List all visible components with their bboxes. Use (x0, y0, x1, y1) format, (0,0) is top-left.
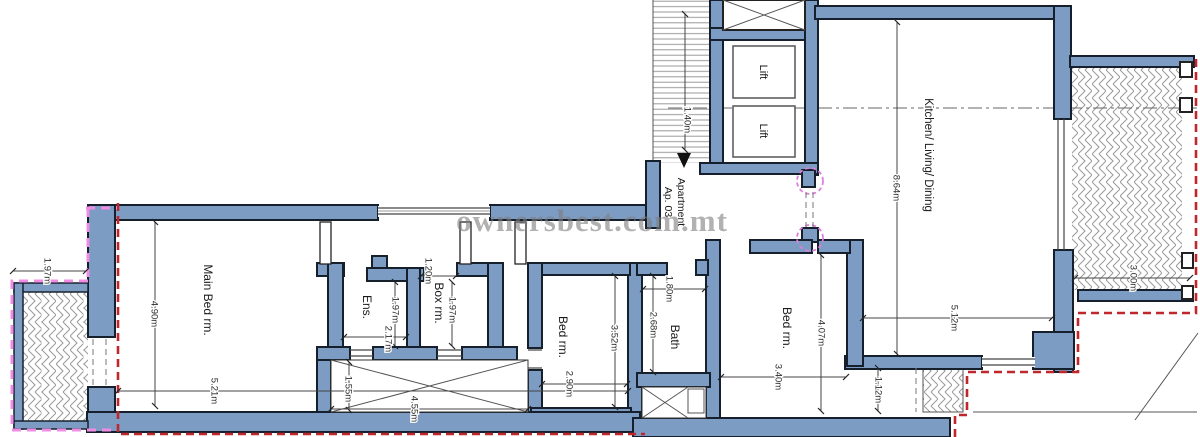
watermark: ownersbest.com.mt (456, 203, 728, 238)
dim-main-bedroom-width: 5.21m (208, 378, 219, 404)
dim-terrace-right-width: 3.00m (1127, 265, 1138, 291)
dim-yard-width: 4.55m (408, 396, 419, 422)
bath-shaft (642, 387, 706, 418)
internal-yard (331, 360, 528, 412)
window-ensuite (350, 350, 373, 356)
dim-box-room-depth: 1.97m (446, 297, 457, 323)
floor-plan-canvas: 1.40m 8.64m 5.12m 3.00m 1.97m 4.90m 5.21… (0, 0, 1200, 437)
dim-bedroom-middle-depth: 3.52m (608, 325, 619, 351)
room-label-bedroom-right: Bed rm. (780, 307, 794, 349)
dim-main-bedroom-depth: 4.90m (148, 301, 159, 327)
boundary-layer (12, 55, 1196, 437)
window-kitchen-east (1058, 119, 1064, 250)
leader-line (1135, 333, 1198, 420)
dim-bedroom-middle-width: 2.90m (563, 371, 574, 397)
staircase-hatch (653, 0, 710, 163)
dim-kitchen-width: 5.12m (948, 305, 959, 331)
strip-hatch (923, 368, 963, 412)
window-bedroom-middle (528, 350, 542, 368)
dim-yard-depth: 1.55m (342, 376, 353, 402)
room-label-main-bedroom: Main Bed rm. (201, 264, 215, 335)
dim-strip-width: 1.12m (872, 377, 883, 403)
dim-ensuite-width: 2.17m (382, 326, 393, 352)
dim-kitchen-length: 8.64m (890, 175, 901, 201)
dim-bath-depth: 2.68m (647, 312, 658, 338)
window-box-room (437, 350, 462, 356)
dim-bedroom-right-depth: 4.07m (815, 320, 826, 346)
terrace-right-hatch (1072, 67, 1182, 290)
balcony-left-hatch (23, 292, 88, 421)
room-label-bedroom-middle: Bed rm. (556, 316, 570, 358)
door-leaf-main-bedroom (320, 222, 331, 264)
room-label-box-room: Box rm. (432, 282, 446, 323)
window-kitchen-south (982, 357, 1035, 367)
dim-balcony-left-width: 1.97m (41, 258, 52, 284)
dim-bedroom-right-width: 3.40m (772, 364, 783, 390)
dim-bath-width: 1.80m (663, 276, 674, 302)
floor-plan-drawing: 1.40m 8.64m 5.12m 3.00m 1.97m 4.90m 5.21… (0, 0, 1200, 437)
room-label-lift-1: Lift (757, 65, 769, 80)
room-label-lift-2: Lift (757, 124, 769, 139)
dim-box-room-width: 1.20m (422, 258, 433, 284)
room-label-bathroom: Bath (668, 325, 682, 350)
dim-stairs-width: 1.40m (681, 107, 692, 133)
room-label-ensuite: Ens. (360, 295, 374, 319)
dim-ensuite-depth: 1.97m (389, 297, 400, 323)
room-label-kitchen-living-dining: Kitchen/ Living/ Dining (922, 98, 934, 212)
